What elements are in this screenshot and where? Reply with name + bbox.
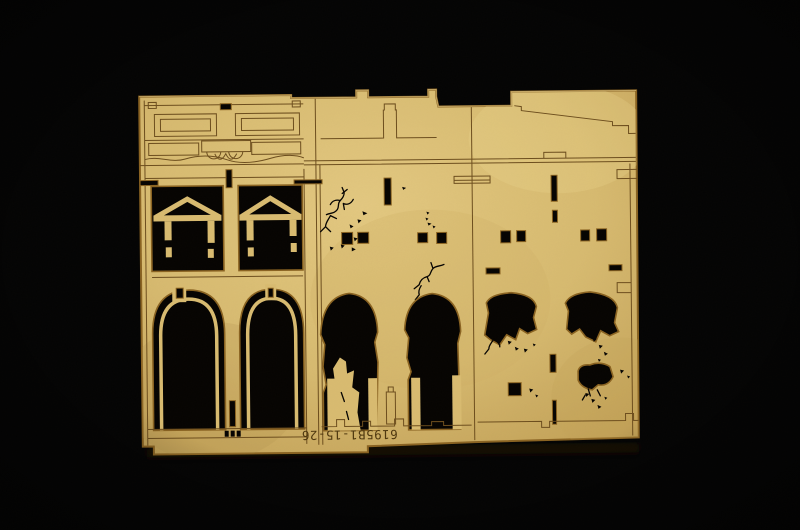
photo-canvas: 6195B1-15-26 [0, 0, 800, 530]
photo-stage: 6195B1-15-26 [0, 0, 800, 530]
film-grain [0, 0, 800, 530]
